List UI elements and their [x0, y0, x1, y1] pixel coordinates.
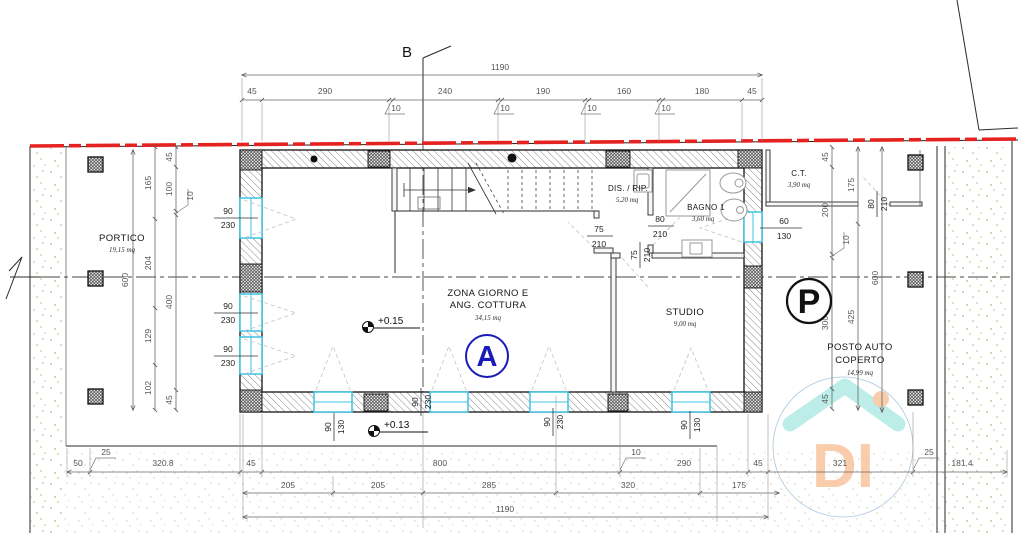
dim-label: 175 [732, 480, 746, 490]
dim-label: 800 [433, 458, 447, 468]
svg-text:210: 210 [653, 229, 667, 239]
dim-label: 45 [747, 86, 757, 96]
room-area-studio: 9,00 mq [674, 320, 697, 328]
level-benchmark-icon [363, 322, 374, 333]
parking-label: P [798, 283, 821, 321]
ct-room [766, 150, 922, 206]
svg-text:130: 130 [692, 418, 702, 432]
dim-flag: 10 [391, 103, 401, 113]
porch-column [88, 157, 103, 172]
dim-flag: 10 [841, 235, 851, 245]
dim-label: 129 [143, 329, 153, 343]
svg-text:90: 90 [223, 206, 233, 216]
door-label-80-210: 80 210 [648, 214, 674, 239]
room-area-portico: 19,15 mq [109, 246, 136, 254]
svg-text:230: 230 [221, 358, 235, 368]
dim-label: 200 [820, 203, 830, 217]
dim-label: 45 [246, 458, 256, 468]
carport-column [908, 155, 923, 170]
room-label-bagno: BAGNO 1 [687, 203, 725, 212]
dim-label: 165 [143, 176, 153, 190]
property-boundary [30, 139, 1018, 147]
staircase [396, 163, 598, 214]
dim-label: 45 [820, 394, 830, 404]
dim-label: 425 [846, 310, 856, 324]
svg-text:230: 230 [555, 415, 565, 429]
room-label-portico: PORTICO [99, 233, 145, 244]
section-flag-left [6, 257, 22, 299]
dim-label: 160 [617, 86, 631, 96]
svg-text:80: 80 [655, 214, 665, 224]
door-label-80-210: 80 210 [866, 191, 889, 217]
svg-text:90: 90 [223, 344, 233, 354]
dim-flag: 10 [631, 447, 641, 457]
room-area-zona-giorno: 34,15 mq [474, 314, 502, 322]
svg-text:80: 80 [866, 199, 876, 209]
dim-label: 50 [73, 458, 83, 468]
dim-flag: 10 [185, 191, 195, 201]
room-label-zona-giorno: ZONA GIORNO E [447, 288, 528, 299]
dim-label: 100 [164, 182, 174, 196]
svg-text:230: 230 [221, 220, 235, 230]
porch-column [88, 389, 103, 404]
dim-label: 320 [621, 480, 635, 490]
svg-text:130: 130 [777, 231, 791, 241]
dim-label: 321 [833, 458, 847, 468]
dim-label: 320.8 [152, 458, 174, 468]
dim-label: 600 [870, 271, 880, 285]
dim-flag: 10 [661, 103, 671, 113]
room-label-dis-rip: DIS. / RIP. [608, 184, 648, 193]
porch-column [88, 271, 103, 286]
window-label-60-130: 60 130 [760, 216, 802, 241]
svg-text:90: 90 [542, 417, 552, 427]
svg-text:130: 130 [336, 420, 346, 434]
svg-text:230: 230 [221, 315, 235, 325]
level-label-interior: +0.15 [378, 316, 404, 327]
dim-label: 180 [695, 86, 709, 96]
svg-text:60: 60 [779, 216, 789, 226]
dim-label: 600 [120, 273, 130, 287]
section-label-b: B [402, 44, 412, 61]
opening-swing-lines [244, 176, 890, 390]
svg-text:75: 75 [594, 224, 604, 234]
floor-plan-canvas: DI 1190 45 290 240 190 160 180 45 10 10 … [0, 0, 1018, 533]
svg-text:230: 230 [423, 395, 433, 409]
dim-flag: 10 [587, 103, 597, 113]
room-area-dis-rip: 5,20 mq [616, 196, 639, 204]
watermark-chimney-dot [873, 391, 889, 407]
dim-label: 102 [143, 381, 153, 395]
neighbor-boundary-line [957, 0, 979, 130]
level-label-exterior: +0.13 [384, 420, 410, 431]
dim-label: 400 [164, 295, 174, 309]
window-label-90-130: 90 130 [323, 413, 346, 441]
dim-label: 45 [820, 152, 830, 162]
door-label-75-210: 75 210 [587, 224, 613, 249]
carport-column [908, 390, 923, 405]
svg-text:90: 90 [679, 420, 689, 430]
dim-label: 240 [438, 86, 452, 96]
dim-label: 45 [753, 458, 763, 468]
carport-column [908, 272, 923, 287]
svg-text:90: 90 [223, 301, 233, 311]
svg-text:90: 90 [410, 397, 420, 407]
dim-label: 290 [677, 458, 691, 468]
room-label-studio: STUDIO [666, 307, 704, 318]
dim-label: 205 [281, 480, 295, 490]
dim-label: 204 [143, 256, 153, 270]
svg-text:75: 75 [629, 250, 639, 260]
room-area-bagno: 3,60 mq [691, 215, 715, 223]
room-label-ct: C.T. [791, 169, 806, 178]
svg-text:210: 210 [642, 248, 652, 262]
dim-flag: 25 [101, 447, 111, 457]
level-benchmark-icon [369, 426, 380, 437]
svg-text:210: 210 [592, 239, 606, 249]
floor-plan-drawing: DI 1190 45 290 240 190 160 180 45 10 10 … [0, 0, 1018, 533]
dim-label: 290 [318, 86, 332, 96]
svg-text:COPERTO: COPERTO [835, 355, 884, 366]
dim-label: 285 [482, 480, 496, 490]
dim-label: 45 [164, 395, 174, 405]
dim-label: 45 [247, 86, 257, 96]
room-area-posto-auto: 14,99 mq [847, 369, 874, 377]
dim-flag: 10 [500, 103, 510, 113]
window-label-90-130: 90 130 [679, 411, 702, 439]
dim-label: 181.4 [951, 458, 973, 468]
dim-flag: 25 [924, 447, 934, 457]
section-flag-b [423, 46, 451, 58]
living-studio-wall [611, 253, 616, 392]
svg-text:210: 210 [879, 197, 889, 211]
dim-label: 175 [846, 178, 856, 192]
room-label-posto-auto: POSTO AUTO [827, 342, 892, 353]
svg-text:ANG. COTTURA: ANG. COTTURA [450, 300, 527, 311]
room-area-ct: 3,90 mq [787, 181, 811, 189]
dim-label: 205 [371, 480, 385, 490]
svg-text:90: 90 [323, 422, 333, 432]
dim-label: 1190 [491, 62, 510, 72]
dim-label: 45 [164, 152, 174, 162]
unit-a-label: A [477, 341, 498, 373]
dim-label: 1190 [496, 504, 515, 514]
dim-label: 190 [536, 86, 550, 96]
